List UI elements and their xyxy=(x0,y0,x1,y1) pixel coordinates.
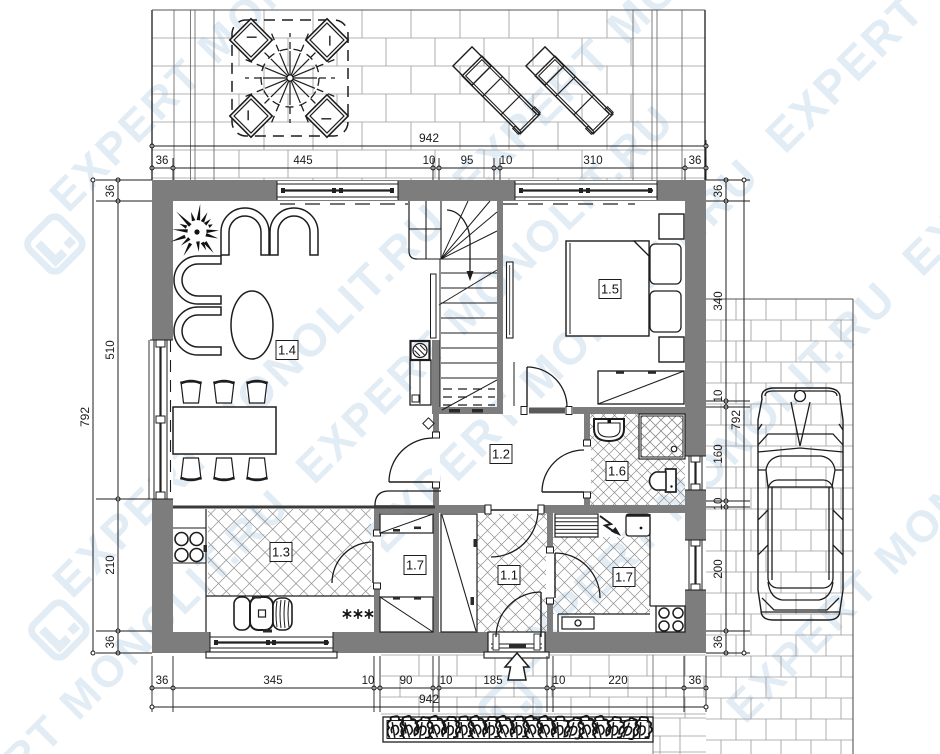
svg-text:185: 185 xyxy=(483,675,502,687)
svg-text:95: 95 xyxy=(461,155,474,167)
svg-text:10: 10 xyxy=(440,675,453,687)
svg-text:36: 36 xyxy=(713,636,725,649)
svg-text:36: 36 xyxy=(156,155,169,167)
svg-text:10: 10 xyxy=(713,390,725,403)
svg-text:10: 10 xyxy=(362,675,375,687)
svg-text:942: 942 xyxy=(419,692,439,706)
svg-text:792: 792 xyxy=(78,407,92,427)
svg-text:160: 160 xyxy=(713,444,725,463)
svg-text:36: 36 xyxy=(689,155,702,167)
svg-text:345: 345 xyxy=(263,675,282,687)
svg-text:792: 792 xyxy=(729,410,743,430)
svg-text:10: 10 xyxy=(423,155,436,167)
svg-text:90: 90 xyxy=(400,675,413,687)
svg-text:210: 210 xyxy=(105,555,117,574)
svg-text:36: 36 xyxy=(689,675,702,687)
svg-text:340: 340 xyxy=(713,291,725,310)
svg-text:1.2: 1.2 xyxy=(492,447,510,462)
svg-text:510: 510 xyxy=(105,340,117,359)
svg-text:10: 10 xyxy=(713,498,725,511)
svg-text:36: 36 xyxy=(105,185,117,198)
svg-text:36: 36 xyxy=(156,675,169,687)
svg-text:445: 445 xyxy=(293,155,312,167)
svg-text:310: 310 xyxy=(583,155,602,167)
svg-text:36: 36 xyxy=(105,636,117,649)
svg-text:10: 10 xyxy=(553,675,566,687)
svg-text:1.1: 1.1 xyxy=(500,568,518,583)
svg-text:1.4: 1.4 xyxy=(278,343,296,358)
svg-text:200: 200 xyxy=(713,559,725,578)
svg-text:1.5: 1.5 xyxy=(601,282,619,297)
svg-text:1.3: 1.3 xyxy=(272,545,290,560)
svg-text:942: 942 xyxy=(419,131,439,145)
svg-text:220: 220 xyxy=(608,675,627,687)
svg-text:1.7: 1.7 xyxy=(615,570,633,585)
svg-text:36: 36 xyxy=(713,185,725,198)
svg-text:1.7: 1.7 xyxy=(406,558,424,573)
svg-text:1.6: 1.6 xyxy=(608,464,626,479)
svg-text:10: 10 xyxy=(500,155,513,167)
